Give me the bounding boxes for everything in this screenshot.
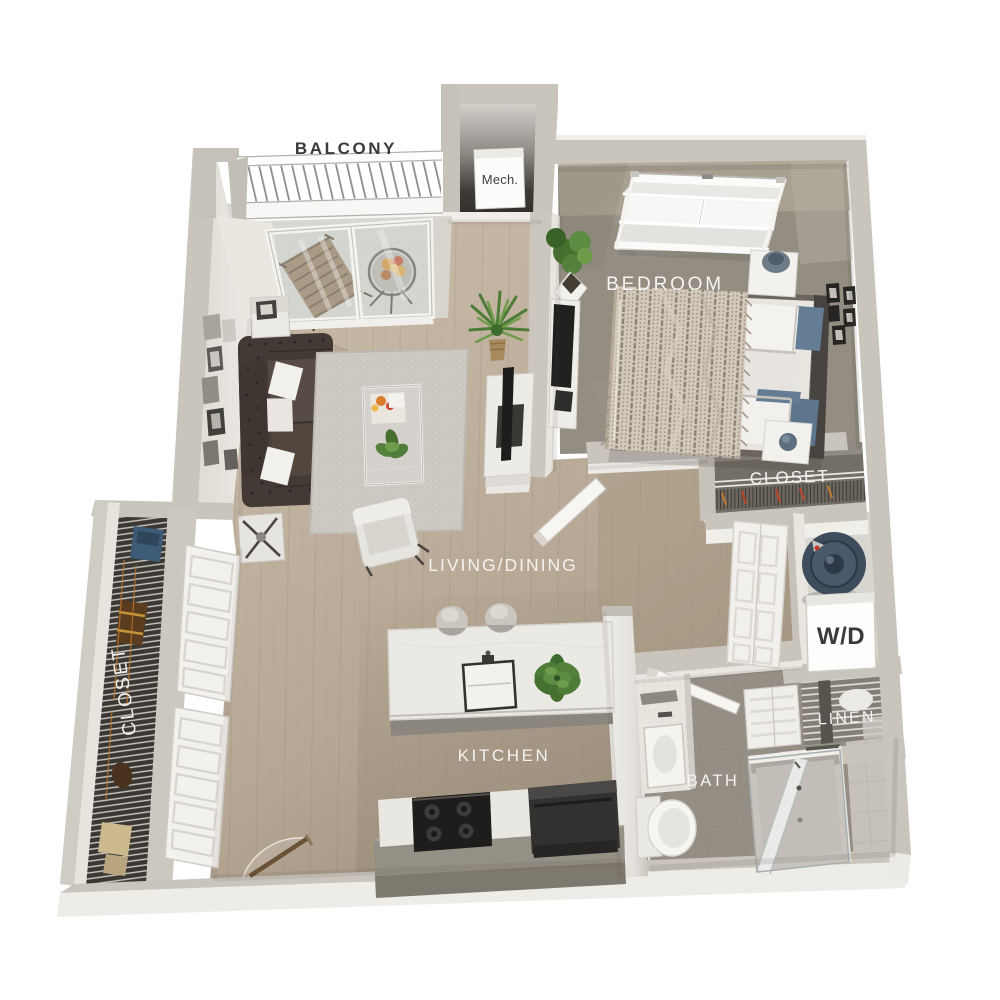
svg-text:LIVING/DINING: LIVING/DINING [428, 555, 578, 575]
svg-text:LINEN: LINEN [817, 708, 876, 728]
svg-text:BALCONY: BALCONY [295, 139, 397, 158]
svg-text:W/D: W/D [817, 623, 865, 650]
svg-text:BEDROOM: BEDROOM [606, 274, 724, 295]
svg-text:Mech.: Mech. [482, 172, 518, 187]
svg-text:CLOSET: CLOSET [749, 467, 830, 489]
svg-text:BATH: BATH [687, 772, 739, 790]
svg-text:KITCHEN: KITCHEN [458, 746, 551, 765]
